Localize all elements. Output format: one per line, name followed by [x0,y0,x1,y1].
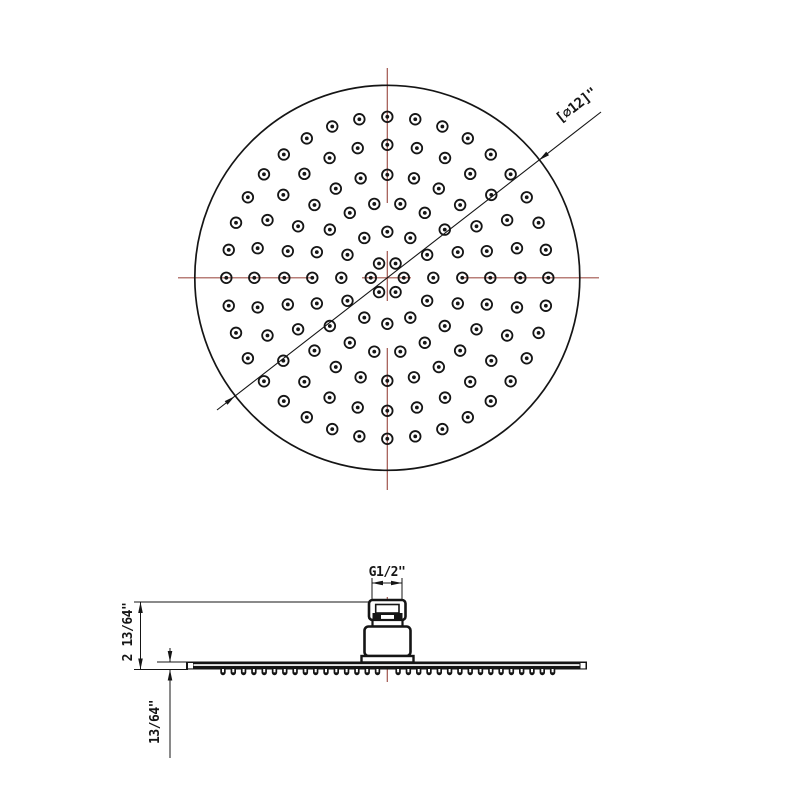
nozzle-tooth-hollow [500,669,502,672]
nozzle-tooth-hollow [222,669,224,672]
nozzle-hole-center [488,276,492,280]
nozzle-tooth-hollow [418,669,420,672]
nozzle-tooth-hollow [490,669,492,672]
nozzle-tooth-hollow [397,669,399,672]
nozzle-hole-center [443,228,447,232]
nozzle-hole-center [362,316,366,320]
nozzle-hole-center [296,224,300,228]
nozzle-hole-center [282,399,286,403]
nozzle-hole-center [227,248,231,252]
nozzle-hole-center [537,331,541,335]
nozzle-hole-center [377,262,381,266]
nozzle-hole-center [489,359,493,363]
nozzle-hole-center [346,253,350,257]
nozzle-hole-center [372,202,376,206]
nozzle-hole-center [489,399,493,403]
nozzle-tooth-hollow [325,669,327,672]
nozzle-hole-center [509,379,513,383]
nozzle-hole-center [431,276,435,280]
nozzle-tooth-hollow [253,669,255,672]
nozzle-hole-center [369,276,373,280]
nozzle-hole-center [385,230,389,234]
nozzle-hole-center [475,224,479,228]
nozzle-hole-center [282,276,286,280]
plate-thickness-label: 13/64" [148,700,163,744]
nozzle-hole-center [339,276,343,280]
nozzle-hole-center [385,409,389,413]
nozzle-hole-center [310,276,314,280]
nozzle-hole-center [356,406,360,410]
nozzle-hole-center [402,276,406,280]
nozzle-hole-center [315,250,319,254]
nozzle-tooth-hollow [480,669,482,672]
nozzle-hole-center [544,304,548,308]
nozzle-hole-center [305,136,309,140]
nozzle-tooth-hollow [284,669,286,672]
nozzle-tooth-hollow [459,669,461,672]
nozzle-hole-center [328,396,332,400]
nozzle-hole-center [408,316,412,320]
nozzle-tooth-hollow [469,669,471,672]
nozzle-hole-center [377,290,381,294]
nozzle-hole-center [515,246,519,250]
nozzle-hole-center [468,380,472,384]
nozzle-tooth-hollow [274,669,276,672]
nozzle-hole-center [437,365,441,369]
nozzle-hole-center [296,327,300,331]
nozzle-hole-center [546,276,550,280]
nozzle-hole-center [346,299,350,303]
overall-height-label: 2 13/64" [121,603,136,662]
nozzle-hole-center [437,187,441,191]
nozzle-hole-center [398,202,402,206]
nozzle-hole-center [412,176,416,180]
nozzle-hole-center [359,375,363,379]
nozzle-hole-center [362,236,366,240]
technical-drawing-canvas: [∅12]" G1/2" 2 13/64" 13/64" [0,0,800,800]
nozzle-hole-center [423,341,427,345]
ball-joint-notch [381,615,394,620]
nozzle-hole-center [505,334,509,338]
head-plate [186,662,587,676]
nozzle-hole-center [413,434,417,438]
plate-right-end-cap [581,663,586,668]
nozzle-tooth-hollow [510,669,512,672]
nozzle-hole-center [302,380,306,384]
nozzle-hole-center [413,117,417,121]
nozzle-hole-center [466,136,470,140]
nozzle-tooth-hollow [438,669,440,672]
nozzle-hole-center [456,302,460,306]
nozzle-hole-center [518,276,522,280]
side-view: G1/2" 2 13/64" 13/64" [121,565,587,758]
nozzle-hole-center [385,173,389,177]
nozzle-hole-center [334,187,338,191]
nozzle-hole-center [313,349,317,353]
nozzle-tooth-hollow [366,669,368,672]
nozzle-hole-center [328,228,332,232]
plate-inner-line [194,664,580,666]
nozzle-hole-center [385,143,389,147]
nozzle-tooth-hollow [552,669,554,672]
nozzle-hole-center [415,406,419,410]
nozzle-hole-center [302,172,306,176]
nozzle-hole-center [328,156,332,160]
nozzle-hole-center [385,115,389,119]
nozzle-hole-center [425,253,429,257]
nozzle-tooth-hollow [294,669,296,672]
nozzle-hole-center [475,327,479,331]
nozzle-hole-center [262,172,266,176]
diameter-dimension-label: [∅12]" [553,85,600,127]
nozzle-hole-center [334,365,338,369]
diameter-dimension [217,112,601,410]
nozzle-hole-center [468,172,472,176]
nozzle-hole-center [385,437,389,441]
nozzle-hole-center [525,356,529,360]
nozzle-hole-center [458,349,462,353]
nozzle-tooth-hollow [304,669,306,672]
nozzle-tooth-hollow [377,669,379,672]
nozzle-hole-center [262,379,266,383]
nozzle-hole-center [315,302,319,306]
nozzle-hole-center [544,248,548,252]
nozzle-hole-center [281,193,285,197]
nozzle-hole-center [286,303,290,307]
nozzle-hole-center [485,249,489,253]
nozzle-tooth-hollow [428,669,430,672]
body-cylinder [365,627,411,657]
nozzle-tooth-hollow [243,669,245,672]
nozzle-hole-center [328,324,332,328]
nozzle-hole-center [246,195,250,199]
nozzle-hole-center [227,304,231,308]
connector-nut-inner-face [376,605,399,614]
nozzle-hole-center [425,299,429,303]
nozzle-hole-center [385,379,389,383]
nozzle-tooth-hollow [531,669,533,672]
nozzle-hole-center [398,350,402,354]
plate-left-end-cap [188,663,193,668]
nozzle-hole-center [394,290,398,294]
nozzle-hole-center [282,153,286,157]
thread-size-label: G1/2" [369,565,406,580]
nozzle-tooth-hollow [356,669,358,672]
nozzle-hole-center [330,125,334,129]
nozzle-hole-center [313,203,317,207]
nozzle-tooth-hollow [232,669,234,672]
nozzle-hole-center [537,221,541,225]
nozzle-hole-center [460,276,464,280]
nozzle-hole-center [234,221,238,225]
nozzle-hole-center [485,303,489,307]
nozzle-tooth-hollow [521,669,523,672]
nozzle-hole-center [286,249,290,253]
nozzle-hole-center [505,218,509,222]
nozzle-hole-center [443,324,447,328]
nozzle-hole-center [415,146,419,150]
nozzle-hole-center [372,350,376,354]
nozzle-hole-center [412,375,416,379]
nozzle-hole-center [305,415,309,419]
nozzle-hole-center [515,305,519,309]
nozzle-hole-center [456,250,460,254]
nozzle-hole-center [458,203,462,207]
nozzle-hole-center [348,211,352,215]
nozzle-tooth-hollow [263,669,265,672]
nozzle-hole-center [440,427,444,431]
nozzle-hole-center [466,415,470,419]
nozzle-hole-center [359,176,363,180]
nozzle-hole-center [408,236,412,240]
nozzle-hole-center [348,341,352,345]
nozzle-hole-center [256,305,260,309]
inlet-connector [362,600,414,663]
nozzle-tooth-hollow [407,669,409,672]
nozzle-hole-center [246,356,250,360]
nozzle-hole-center [423,211,427,215]
nozzle-hole-center [385,322,389,326]
nozzle-hole-center [330,427,334,431]
nozzle-hole-center [256,246,260,250]
nozzle-hole-center [234,331,238,335]
nozzle-hole-center [357,117,361,121]
nozzle-tooth-hollow [346,669,348,672]
nozzle-tooth-hollow [335,669,337,672]
nozzle-hole-center [266,218,270,222]
nozzle-hole-center [443,396,447,400]
nozzle-hole-center [357,434,361,438]
nozzle-hole-center [224,276,228,280]
nozzle-tooth-hollow [449,669,451,672]
nozzle-hole-center [252,276,256,280]
nozzle-hole-center [525,195,529,199]
nozzle-hole-center [443,156,447,160]
nozzle-hole-center [489,153,493,157]
nozzle-tooth-hollow [541,669,543,672]
nozzle-hole-center [394,262,398,266]
nozzle-hole-center [440,125,444,129]
nozzle-tooth-hollow [315,669,317,672]
nozzle-hole-center [266,334,270,338]
nozzle-hole-center [509,172,513,176]
nozzle-hole-center [356,146,360,150]
